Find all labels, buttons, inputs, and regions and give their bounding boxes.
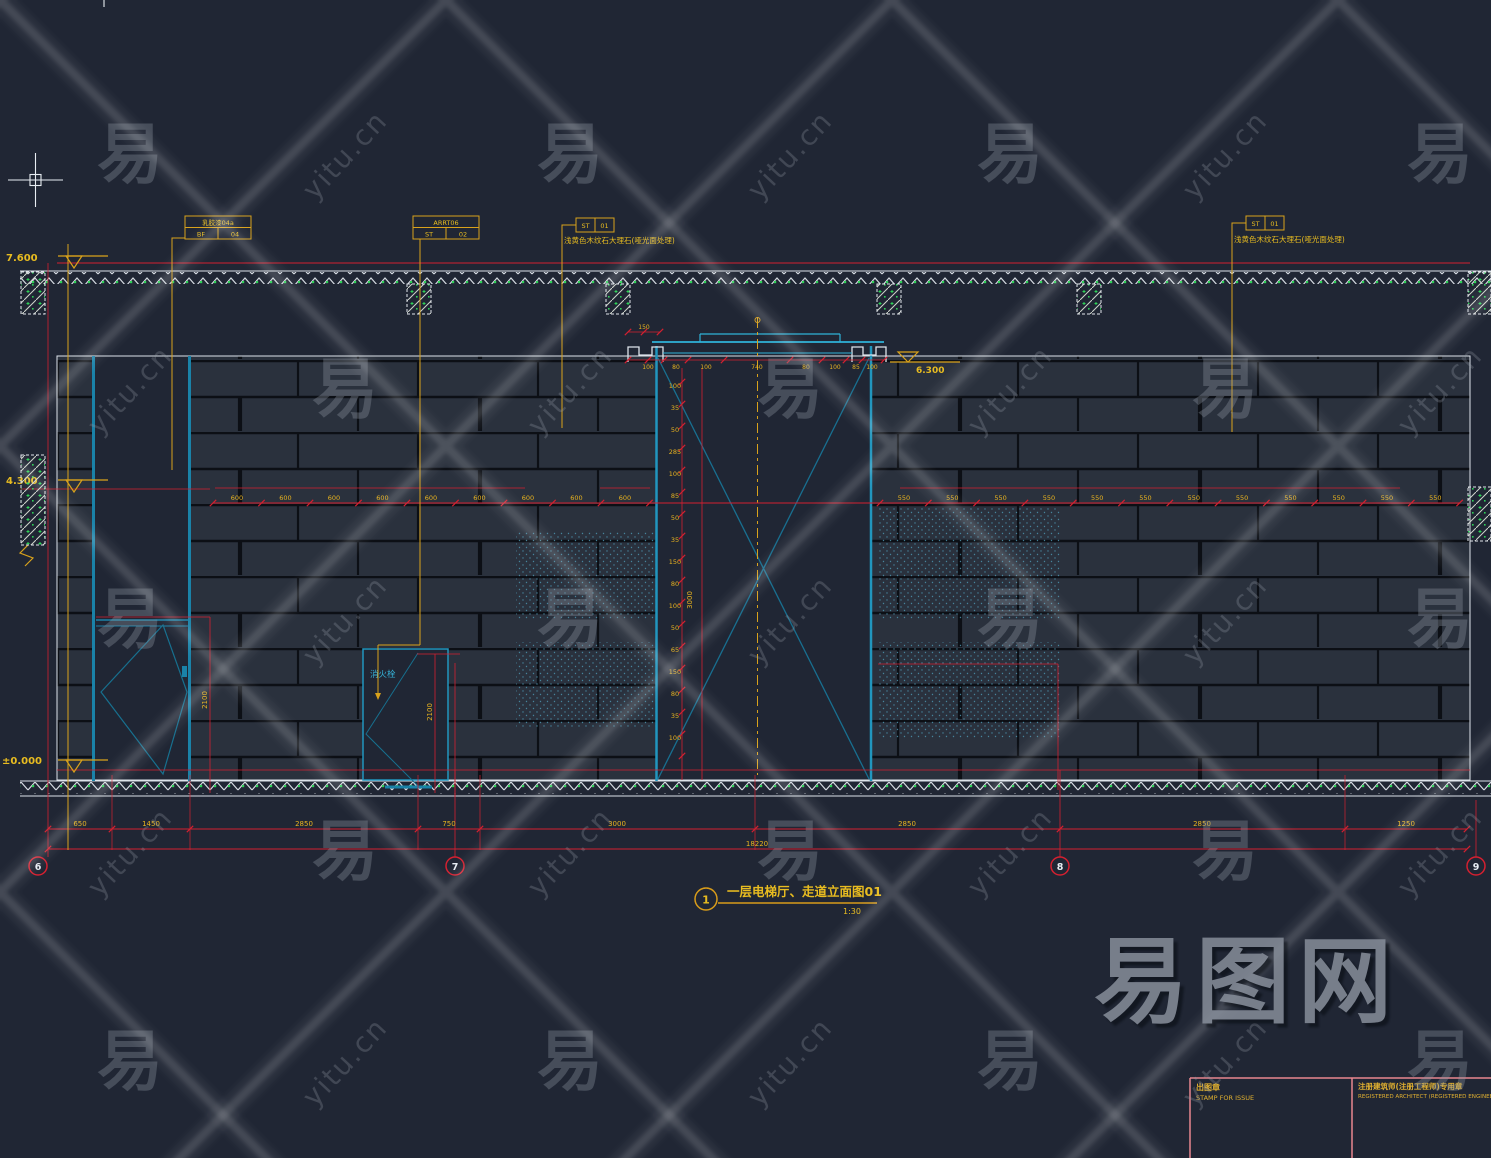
dim-label: 100 [700, 364, 712, 371]
dim-label: 600 [522, 494, 534, 502]
dim-label: 50 [671, 426, 679, 434]
dim-label: 80 [802, 364, 810, 371]
dim-label: 100 [669, 382, 681, 390]
dim-label: 2850 [295, 820, 313, 828]
callout-code: ST [425, 231, 433, 239]
dim-label: 600 [425, 494, 437, 502]
detail-number: 1 [702, 894, 710, 907]
dim-label: 50 [671, 514, 679, 522]
dim-label: 150 [638, 324, 650, 331]
dim-label: 600 [376, 494, 388, 502]
callout-code: 04 [231, 231, 239, 239]
dim-label: 550 [1429, 494, 1441, 502]
level-label: ±0.000 [2, 756, 42, 767]
dim-label: 100 [669, 734, 681, 742]
axis-bubble: 7 [452, 862, 459, 873]
dim-label: 80 [671, 690, 679, 698]
title-scale: 1:30 [843, 907, 861, 916]
dim-label: 740 [751, 364, 763, 371]
axis-bubble: 6 [35, 862, 42, 873]
dim-label: 150 [669, 558, 681, 566]
callout-code: ST [1251, 220, 1259, 228]
dim-label: 600 [619, 494, 631, 502]
cad-canvas: 消火栓 [0, 0, 1491, 1158]
dim-label: 600 [279, 494, 291, 502]
dotted-stone-hatch [516, 532, 656, 620]
dim-label: 550 [946, 494, 958, 502]
callout-title: 乳胶漆04a [202, 218, 234, 227]
level-label: 6.300 [916, 366, 944, 376]
dim-label: 600 [473, 494, 485, 502]
callout-code: ST [581, 222, 589, 230]
door-handle [182, 666, 187, 677]
dim-label: 600 [570, 494, 582, 502]
dim-label: 85 [852, 364, 860, 371]
dim-label: 100 [669, 602, 681, 610]
axis-bubble: 9 [1473, 862, 1480, 873]
dim-label: 2100 [201, 691, 209, 709]
dim-label: 550 [1381, 494, 1393, 502]
callout-title: ARRT06 [433, 219, 458, 227]
callout-note: 浅黄色木纹石大理石(哑光面处理) [1234, 234, 1345, 244]
dim-label: 550 [1284, 494, 1296, 502]
dim-label: 2100 [426, 703, 434, 721]
dim-label: 550 [1188, 494, 1200, 502]
dim-label: 750 [442, 820, 455, 828]
dim-label: 550 [1043, 494, 1055, 502]
dim-label: 100 [866, 364, 878, 371]
dim-label: 550 [994, 494, 1006, 502]
dim-label: 550 [898, 494, 910, 502]
dim-label: 650 [73, 820, 86, 828]
dim-label: 2850 [1193, 820, 1211, 828]
stamp-label-en: STAMP FOR ISSUE [1196, 1094, 1254, 1102]
site-logo: 易图网 [1094, 936, 1400, 1030]
dim-total-label: 18220 [746, 840, 768, 848]
dim-label: 285 [669, 448, 681, 456]
dim-label: 35 [671, 404, 679, 412]
dim-label: 80 [671, 580, 679, 588]
dim-label: 600 [328, 494, 340, 502]
dim-label: 50 [671, 624, 679, 632]
dim-label: 550 [1236, 494, 1248, 502]
dim-label: 3000 [608, 820, 626, 828]
dim-label: 80 [672, 364, 680, 371]
callout-code: 01 [600, 222, 608, 230]
registered-stamp-cn: 注册建筑师(注册工程师)专用章 [1358, 1081, 1463, 1091]
dim-label: 550 [1139, 494, 1151, 502]
dim-label: 100 [829, 364, 841, 371]
dim-row-mid-left: 600600600600600600600600600 [231, 494, 631, 502]
dim-label: 150 [669, 668, 681, 676]
dim-label: 3000 [686, 591, 694, 609]
dim-label: 100 [669, 470, 681, 478]
dim-label: 35 [671, 712, 679, 720]
hydrant-label: 消火栓 [370, 669, 396, 680]
dim-label: 600 [231, 494, 243, 502]
dim-label: 85 [671, 492, 679, 500]
callout-code: 02 [459, 231, 467, 239]
dim-label: 65 [671, 646, 679, 654]
dim-label: 550 [1332, 494, 1344, 502]
callout-code: BF [197, 231, 205, 239]
registered-stamp-en: REGISTERED ARCHITECT (REGISTERED ENGINEE… [1358, 1094, 1491, 1100]
dim-label: 100 [642, 364, 654, 371]
callout-code: 01 [1270, 220, 1278, 228]
stamp-label-cn: 出图章 [1196, 1082, 1220, 1092]
callout-note: 浅黄色木纹石大理石(哑光面处理) [564, 235, 675, 245]
dim-label: 35 [671, 536, 679, 544]
title-text: 一层电梯厅、走道立面图01 [727, 884, 882, 899]
floor-band [20, 781, 1491, 796]
level-label: 7.600 [6, 253, 38, 264]
dim-label: 550 [1091, 494, 1103, 502]
dim-label: 2850 [898, 820, 916, 828]
dim-label: 1450 [142, 820, 160, 828]
dim-label: 1250 [1397, 820, 1415, 828]
axis-bubble: 8 [1057, 862, 1064, 873]
